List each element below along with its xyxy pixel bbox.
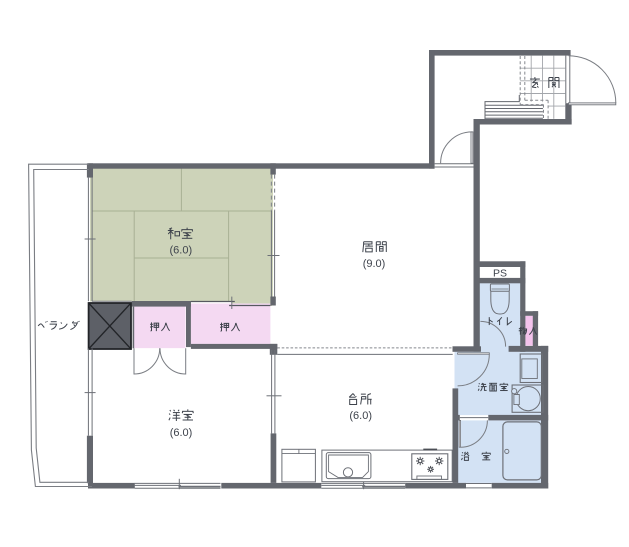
- svg-text:(6.0): (6.0): [349, 410, 372, 422]
- svg-text:(6.0): (6.0): [169, 245, 192, 257]
- svg-text:(6.0): (6.0): [170, 427, 193, 439]
- svg-text:PS: PS: [493, 267, 507, 279]
- svg-text:(9.0): (9.0): [363, 258, 386, 270]
